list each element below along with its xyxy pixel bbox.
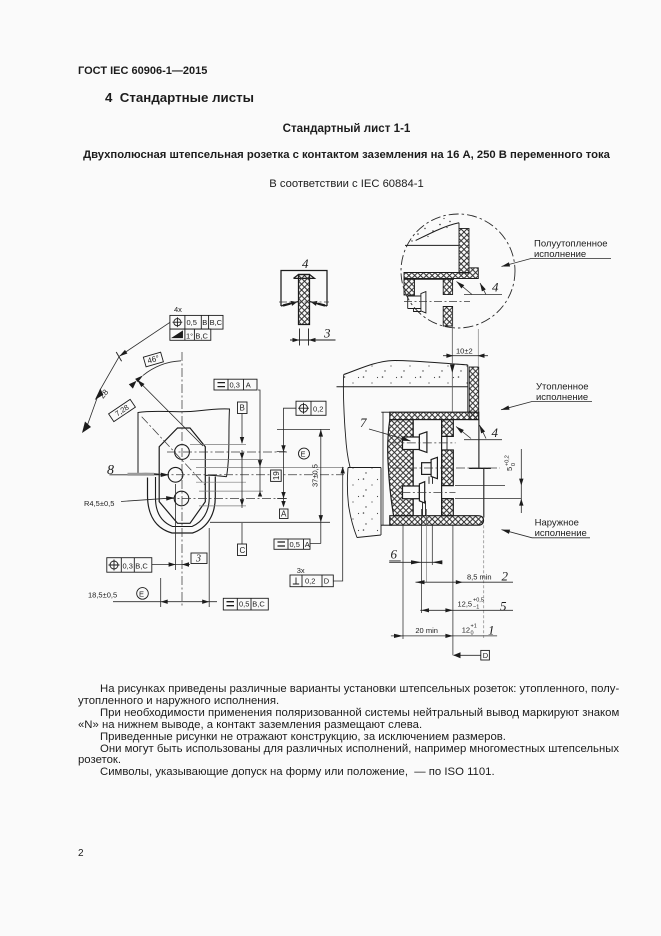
svg-text:3: 3 [195, 554, 201, 565]
svg-text:3: 3 [323, 326, 331, 341]
svg-text:1°: 1° [186, 331, 193, 340]
svg-text:+1: +1 [471, 624, 477, 630]
svg-text:B: B [240, 404, 245, 413]
svg-text:A: A [246, 380, 251, 389]
svg-text:D: D [324, 576, 330, 585]
svg-text:1: 1 [488, 623, 495, 638]
svg-text:12,5: 12,5 [458, 600, 473, 609]
svg-text:B,C: B,C [252, 599, 265, 608]
svg-text:37±0,5: 37±0,5 [311, 464, 320, 487]
svg-text:исполнение: исполнение [535, 528, 587, 539]
svg-text:5: 5 [505, 467, 514, 471]
svg-text:B,C: B,C [195, 331, 208, 340]
svg-text:+0,5: +0,5 [473, 598, 484, 604]
svg-text:Утопленное: Утопленное [536, 382, 589, 393]
svg-text:B: B [202, 318, 207, 327]
svg-text:8: 8 [107, 463, 114, 478]
svg-text:0,2: 0,2 [305, 576, 315, 585]
svg-text:0,5: 0,5 [187, 318, 197, 327]
svg-text:0: 0 [471, 631, 474, 637]
svg-text:E: E [139, 589, 144, 598]
svg-text:0,5: 0,5 [239, 599, 249, 608]
svg-text:19: 19 [272, 471, 281, 480]
svg-text:+0,2: +0,2 [505, 455, 511, 466]
svg-text:12: 12 [462, 625, 470, 634]
svg-text:B,C: B,C [135, 562, 148, 571]
svg-text:Полуутопленное: Полуутопленное [534, 239, 608, 250]
svg-text:10±2: 10±2 [456, 347, 473, 356]
svg-text:B,C: B,C [210, 318, 223, 327]
svg-text:R4,5±0,5: R4,5±0,5 [84, 499, 114, 508]
svg-text:4: 4 [302, 256, 309, 271]
svg-text:3x: 3x [297, 566, 305, 575]
svg-text:18,5±0,5: 18,5±0,5 [88, 591, 117, 600]
svg-text:5: 5 [500, 599, 507, 614]
svg-text:4: 4 [492, 280, 499, 295]
svg-text:28: 28 [98, 387, 111, 400]
svg-text:7: 7 [360, 415, 367, 430]
svg-text:E: E [301, 449, 306, 458]
svg-text:0,3: 0,3 [230, 380, 240, 389]
svg-text:0,3: 0,3 [123, 562, 133, 571]
svg-text:8,5 min: 8,5 min [467, 572, 492, 581]
svg-text:0,5: 0,5 [290, 540, 300, 549]
svg-text:A: A [281, 510, 287, 519]
svg-text:−1: −1 [473, 605, 479, 611]
svg-text:Наружное: Наружное [535, 517, 579, 528]
svg-text:A: A [305, 540, 310, 549]
svg-text:6: 6 [391, 547, 398, 562]
svg-text:20 min: 20 min [415, 626, 438, 635]
svg-text:D: D [483, 651, 489, 660]
svg-text:4x: 4x [174, 305, 182, 314]
svg-text:2: 2 [502, 569, 509, 584]
svg-text:0,2: 0,2 [313, 405, 323, 414]
svg-text:4: 4 [492, 425, 499, 440]
svg-text:0: 0 [511, 463, 517, 466]
svg-text:C: C [240, 546, 246, 555]
